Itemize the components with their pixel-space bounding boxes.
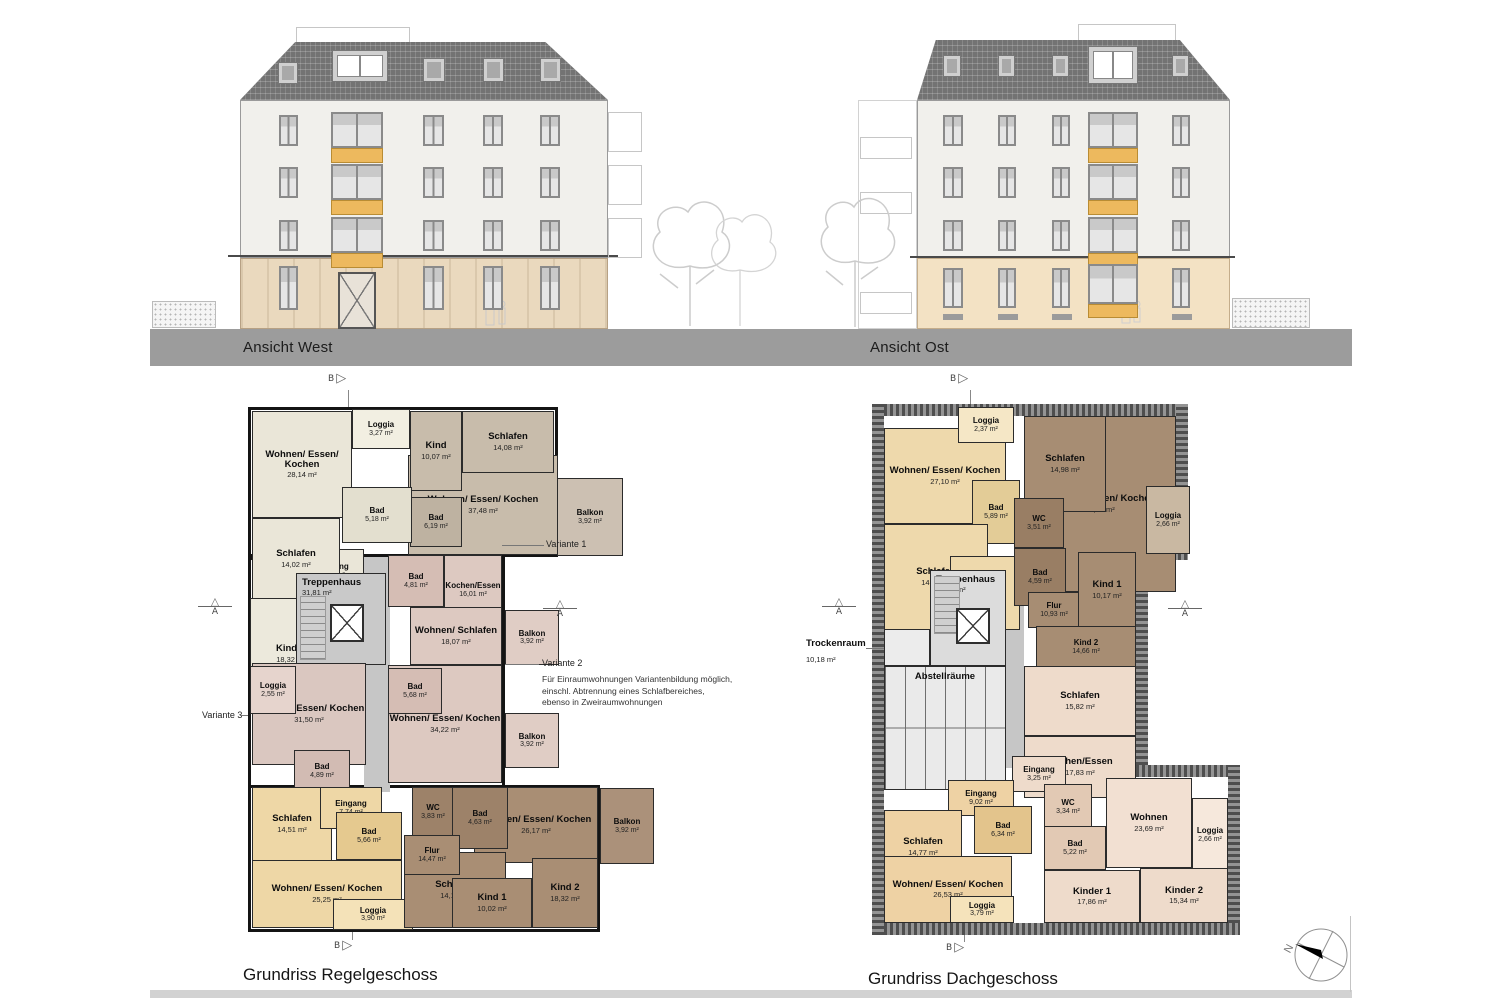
section-letter: A (836, 607, 842, 617)
tree-sketch (800, 185, 910, 329)
room-kind-1: Kind 110,02 m² (452, 878, 532, 928)
room-name: Bad (428, 514, 443, 523)
facade-accent-panel (331, 253, 383, 268)
triangle-up-icon: △ (556, 599, 564, 608)
section-letter: A (1182, 609, 1188, 619)
roof-edge (872, 923, 1240, 935)
room-name: Loggia (1155, 512, 1181, 521)
room-area: 3,25 m² (1027, 775, 1051, 782)
room-balkon: Balkon3,92 m² (505, 713, 559, 768)
section-letter: A (557, 609, 563, 619)
room-area: 2,66 m² (1198, 836, 1222, 843)
room-area: 23,69 m² (1134, 824, 1164, 833)
room-area: 14,02 m² (281, 560, 311, 569)
room-area: 3,27 m² (369, 430, 393, 437)
room-abstellraeume: Abstellräume (884, 666, 1006, 790)
room-area: 28,14 m² (287, 470, 317, 479)
room-name: Schlafen (1045, 454, 1085, 464)
section-line (352, 932, 353, 940)
annotation-variante2-line: einschl. Abtrennung eines Schlafbereiche… (542, 686, 732, 698)
room-name: Kind (425, 441, 446, 451)
room-name: WC (1061, 799, 1074, 808)
annotation-variante2-line: ebenso in Zweiraumwohnungen (542, 697, 732, 709)
room-area: 10,02 m² (477, 904, 507, 913)
dormer-glass (487, 62, 500, 78)
room-wohnen: Wohnen23,69 m² (1106, 778, 1192, 868)
facade-accent-panel (331, 148, 383, 163)
slab-line (910, 256, 1235, 258)
north-letter: N (1282, 942, 1296, 955)
room-area: 14,47 m² (418, 856, 446, 863)
room-area: 10,93 m² (1040, 611, 1068, 618)
room-area: 34,22 m² (430, 725, 460, 734)
section-marker-b: B▷ (950, 373, 968, 385)
leader-line (866, 648, 884, 649)
room-area: 18,32 m² (550, 894, 580, 903)
window (1172, 220, 1190, 251)
room-wc: WC3,51 m² (1014, 498, 1064, 548)
room-wc: WC3,34 m² (1044, 784, 1092, 830)
dormer-window (998, 55, 1015, 77)
room-area: 6,19 m² (424, 523, 448, 530)
room-kinder-1: Kinder 117,86 m² (1044, 870, 1140, 923)
stair-treads (300, 596, 326, 660)
room-loggia: Loggia2,55 m² (250, 666, 296, 714)
room-name: Balkon (519, 733, 546, 742)
room-name: Schlafen (488, 432, 528, 442)
room-area: 2,55 m² (261, 691, 285, 698)
room-name: Eingang (965, 790, 997, 799)
room-kind-2: Kind 218,32 m² (532, 858, 598, 928)
dormer-glass (1002, 59, 1011, 73)
room-area: 5,66 m² (357, 837, 381, 844)
elevator-shaft (956, 608, 990, 644)
room-name: Loggia (360, 907, 386, 916)
footer-band (150, 990, 1352, 998)
room-name: Flur (424, 847, 439, 856)
section-marker-b: B▷ (946, 942, 964, 954)
window (483, 220, 503, 251)
room-area: 17,83 m² (1065, 768, 1095, 777)
roof-terrace-railing (1078, 24, 1176, 41)
room-area: 5,89 m² (984, 513, 1008, 520)
section-marker-b: B▷ (334, 940, 352, 952)
room-loggia: Loggia2,66 m² (1146, 486, 1190, 554)
room-loggia: Loggia2,37 m² (958, 407, 1014, 443)
room-area: 26,17 m² (521, 826, 551, 835)
room-name: Bad (988, 504, 1003, 513)
window (423, 266, 444, 310)
room-name: Schlafen (272, 814, 312, 824)
room-name: Bad (369, 507, 384, 516)
triangle-right-icon: ▷ (954, 942, 964, 954)
window (540, 115, 560, 146)
room-name: Bad (1067, 840, 1082, 849)
room-name: Loggia (368, 421, 394, 430)
dormer-window (483, 58, 504, 82)
window (943, 220, 963, 251)
section-letter: A (212, 607, 218, 617)
elevation-label-west: Ansicht West (243, 339, 333, 356)
room-area: 17,86 m² (1077, 897, 1107, 906)
room-wohnen-schlafen: Wohnen/ Schlafen18,07 m² (410, 607, 502, 665)
triangle-up-icon: △ (1181, 599, 1189, 608)
entrance-door (338, 272, 376, 329)
dormer-window (423, 58, 445, 82)
room-name: Balkon (519, 630, 546, 639)
window (1172, 167, 1190, 198)
window (1172, 115, 1190, 146)
dormer-glass (1176, 59, 1185, 73)
room-schlafen: Schlafen15,82 m² (1024, 666, 1136, 736)
room-name: Wohnen/ Essen/ Kochen (390, 714, 501, 724)
facade-accent-panel (1088, 200, 1138, 215)
room-bad: Bad6,19 m² (410, 497, 462, 547)
section-line (970, 390, 971, 404)
section-marker-a: △A (822, 597, 856, 617)
roof-terrace-railing (296, 27, 410, 43)
window (279, 220, 298, 251)
roof-edge (1228, 765, 1240, 935)
room-name: Balkon (614, 818, 641, 827)
dormer-glass (947, 59, 957, 73)
room-name: Schlafen (903, 837, 943, 847)
room-name: Bad (408, 573, 423, 582)
room-name: Eingang (335, 800, 367, 809)
room-loggia: Loggia3,27 m² (352, 409, 410, 449)
window (1088, 217, 1138, 253)
room-area: 4,63 m² (468, 819, 492, 826)
room-area: 3,34 m² (1056, 808, 1080, 815)
window (1088, 164, 1138, 200)
section-line (964, 935, 965, 942)
room-name: Schlafen (1060, 691, 1100, 701)
room-name: Kind 1 (477, 893, 506, 903)
leader-line (240, 715, 248, 716)
room-name: Flur (1046, 602, 1061, 611)
room-area: 3,92 m² (578, 518, 602, 525)
room-area: 16,01 m² (459, 591, 487, 598)
room-flur: Flur14,47 m² (404, 835, 460, 875)
room-name: Abstellräume (915, 672, 975, 682)
hedge-sketch (1232, 298, 1310, 328)
room-bad: Bad4,89 m² (294, 750, 350, 792)
room-name: Wohnen/ Essen/ Kochen (253, 450, 351, 471)
roof-edge (872, 404, 1188, 416)
room-flur: Flur10,93 m² (1028, 592, 1080, 628)
room-area: 5,68 m² (403, 692, 427, 699)
room-area: 2,66 m² (1156, 521, 1180, 528)
window (331, 112, 383, 148)
annotation-variante2-line: Für Einraumwohnungen Variantenbildung mö… (542, 674, 732, 686)
dormer-window (278, 62, 298, 84)
window (943, 167, 963, 198)
window (423, 167, 444, 198)
room-name: Kind 1 (1092, 580, 1121, 590)
elevation-label-ost: Ansicht Ost (870, 339, 949, 356)
window (423, 220, 444, 251)
room-area: 3,92 m² (520, 741, 544, 748)
triangle-up-icon: △ (211, 597, 219, 606)
room-area: 5,18 m² (365, 516, 389, 523)
room-name: Kind 2 (550, 883, 579, 893)
section-marker-a: △A (543, 599, 577, 619)
window (279, 167, 298, 198)
room-area: 10,07 m² (421, 452, 451, 461)
room-area: 3,83 m² (421, 813, 445, 820)
room-bad: Bad5,66 m² (336, 812, 402, 860)
triangle-right-icon: ▷ (336, 373, 346, 385)
window (540, 167, 560, 198)
room-bad: Bad5,22 m² (1044, 826, 1106, 870)
window (1088, 112, 1138, 148)
leader-line (502, 545, 544, 546)
room-area: 15,34 m² (1169, 896, 1199, 905)
room-bad: Bad5,68 m² (388, 668, 442, 714)
room-area: 14,66 m² (1072, 648, 1100, 655)
room-area: 31,50 m² (294, 715, 324, 724)
annotation-variante1: Variante 1 (546, 539, 586, 549)
plan2-title: Grundriss Dachgeschoss (868, 969, 1058, 989)
dormer-glass (544, 62, 557, 78)
window (998, 220, 1016, 251)
room-area: 4,81 m² (404, 582, 428, 589)
room-bad: Bad4,81 m² (388, 555, 444, 607)
elevator-shaft (330, 604, 364, 642)
window (331, 164, 383, 200)
section-marker-a: △A (198, 597, 232, 617)
room-schlafen: Schlafen14,08 m² (462, 411, 554, 473)
room-area: 3,51 m² (1027, 524, 1051, 531)
window (483, 167, 503, 198)
window (279, 115, 298, 146)
window (1052, 115, 1070, 146)
room-loggia: Loggia2,66 m² (1192, 798, 1228, 872)
room-name: Bad (472, 810, 487, 819)
room-area: 14,08 m² (493, 443, 523, 452)
roof-edge (872, 404, 884, 935)
room-name: Schlafen (276, 549, 316, 559)
room-name: Bad (314, 763, 329, 772)
window (1172, 268, 1190, 308)
drawing-sheet: Ansicht West Ansicht Ost Wohnen/ Essen/ … (0, 0, 1499, 1000)
section-letter: B (328, 374, 334, 384)
balcony-outline (860, 137, 912, 159)
base-vent (943, 314, 963, 320)
window (423, 115, 444, 146)
annotation-trockenraum: Trockenraum 10,18 m² (806, 638, 878, 667)
section-letter: B (946, 943, 952, 953)
window (279, 266, 298, 310)
room-name: Bad (1032, 569, 1047, 578)
plan1-title: Grundriss Regelgeschoss (243, 965, 438, 985)
facade-accent-panel (1088, 304, 1138, 318)
room-name: Wohnen (1130, 813, 1167, 823)
room-area: 9,02 m² (969, 799, 993, 806)
window (1052, 167, 1070, 198)
room-area: 18,07 m² (441, 637, 471, 646)
room-name: Kinder 1 (1073, 887, 1111, 897)
room-bad: Bad6,34 m² (974, 806, 1032, 854)
triangle-right-icon: ▷ (958, 373, 968, 385)
window (540, 220, 560, 251)
tree-sketch (690, 200, 790, 328)
room-area: 37,48 m² (468, 506, 498, 515)
window (998, 115, 1016, 146)
room-area: 3,92 m² (615, 827, 639, 834)
window (483, 266, 503, 310)
triangle-right-icon: ▷ (342, 940, 352, 952)
room-kinder-2: Kinder 215,34 m² (1140, 868, 1228, 923)
section-line (348, 390, 349, 407)
room-area: 27,10 m² (930, 477, 960, 486)
dormer-window (540, 58, 561, 82)
dormer-glass (1056, 59, 1065, 73)
hedge-sketch (152, 301, 216, 328)
window (943, 268, 963, 308)
dormer-window (943, 55, 961, 77)
triangle-up-icon: △ (835, 597, 843, 606)
window (1088, 264, 1138, 304)
room-name: Loggia (969, 902, 995, 911)
window (943, 115, 963, 146)
room-name: Kochen/Essen (445, 582, 500, 591)
canopy-line (228, 255, 618, 257)
dormer-glass (337, 55, 383, 77)
sheet-edge-line (1350, 916, 1351, 992)
room-loggia: Loggia3,90 m² (333, 899, 413, 930)
room-wc: WC3,83 m² (412, 787, 454, 837)
room-balkon: Balkon3,92 m² (600, 788, 654, 864)
room-area: 4,89 m² (310, 772, 334, 779)
base-vent (1172, 314, 1192, 320)
roof-edge (1136, 765, 1240, 777)
room-area: 2,37 m² (974, 426, 998, 433)
dormer-large (1088, 46, 1138, 84)
window (998, 268, 1016, 308)
window (1052, 220, 1070, 251)
room-name: Balkon (577, 509, 604, 518)
room-loggia: Loggia3,79 m² (950, 896, 1014, 923)
room-kind: Kind10,07 m² (410, 411, 462, 491)
room-area: 6,34 m² (991, 831, 1015, 838)
annotation-variante3: Variante 3 (202, 710, 242, 720)
dormer-glass (1093, 51, 1133, 79)
room-name: Bad (407, 683, 422, 692)
room-name: Treppenhaus (302, 578, 361, 588)
room-bad: Bad4,63 m² (452, 787, 508, 849)
room-area: 5,22 m² (1063, 849, 1087, 856)
room-area: 10,18 m² (806, 655, 836, 664)
section-letter: B (950, 374, 956, 384)
annotation-variante2: Variante 2 Für Einraumwohnungen Variante… (542, 658, 732, 709)
room-name: Wohnen/ Essen/ Kochen (272, 884, 383, 894)
room-name: Bad (995, 822, 1010, 831)
dormer-window (1052, 55, 1069, 77)
window (540, 266, 560, 310)
window (483, 115, 503, 146)
dormer-glass (427, 62, 441, 78)
room-name: Wohnen/ Schlafen (415, 626, 497, 636)
dormer-window (1172, 55, 1189, 77)
room-kind-1: Kind 110,17 m² (1078, 552, 1136, 628)
dormer-glass (282, 66, 294, 80)
room-name: Loggia (260, 682, 286, 691)
room-name: Loggia (1197, 827, 1223, 836)
room-area: 14,98 m² (1050, 465, 1080, 474)
room-name: Kind 2 (1074, 639, 1098, 648)
section-marker-a: △A (1168, 599, 1202, 619)
room-area: 14,51 m² (277, 825, 307, 834)
balcony-outline (608, 112, 642, 152)
facade-accent-panel (331, 200, 383, 215)
window (1052, 268, 1070, 308)
room-bad: Bad5,18 m² (342, 487, 412, 543)
room-area: 15,82 m² (1065, 702, 1095, 711)
section-letter: B (334, 941, 340, 951)
room-name: Wohnen/ Essen/ Kochen (893, 880, 1004, 890)
room-area: 3,90 m² (361, 915, 385, 922)
dormer-large (332, 50, 388, 82)
window (331, 217, 383, 253)
room-wohnen-essen-kochen: Wohnen/ Essen/ Kochen28,14 m² (252, 411, 352, 518)
base-vent (1052, 314, 1072, 320)
room-name: Kinder 2 (1165, 886, 1203, 896)
room-name: Wohnen/ Essen/ Kochen (890, 466, 1001, 476)
base-vent (998, 314, 1018, 320)
room-area: 3,92 m² (520, 638, 544, 645)
room-name: WC (1032, 515, 1045, 524)
room-name: Eingang (1023, 766, 1055, 775)
room-name: WC (426, 804, 439, 813)
room-area: 10,17 m² (1092, 591, 1122, 600)
room-name: Loggia (973, 417, 999, 426)
annotation-variante2-title: Variante 2 (542, 658, 732, 668)
window (998, 167, 1016, 198)
room-name: Bad (361, 828, 376, 837)
facade-accent-panel (1088, 148, 1138, 163)
room-area: 3,79 m² (970, 910, 994, 917)
section-marker-b: B▷ (328, 373, 346, 385)
room-kind-2: Kind 214,66 m² (1036, 626, 1136, 668)
leader-line (505, 664, 539, 665)
room-area: 4,59 m² (1028, 578, 1052, 585)
north-compass: N (1282, 920, 1354, 992)
